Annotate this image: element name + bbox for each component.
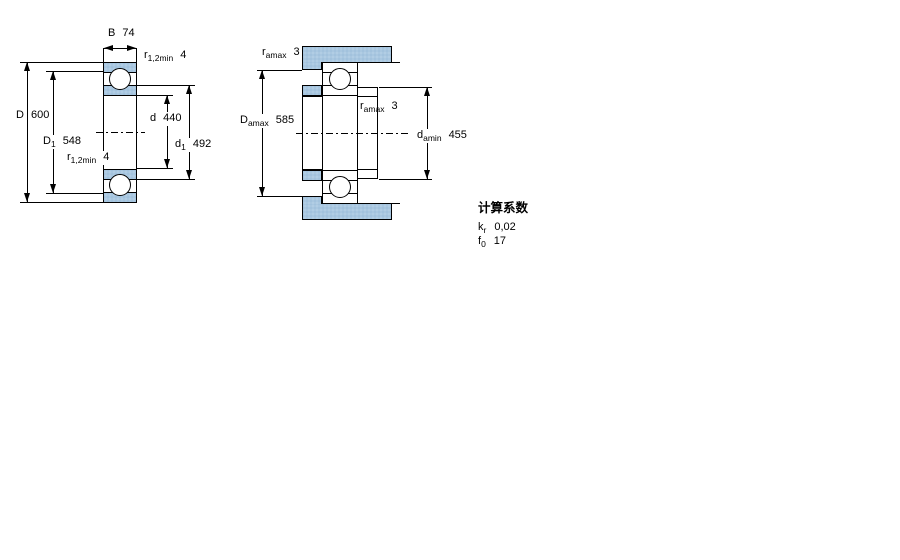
housing-top xyxy=(302,46,392,63)
dim-label-ramax-mid: ramax3 xyxy=(360,100,398,114)
dimension-line-d1 xyxy=(189,86,190,179)
ball-top xyxy=(329,68,351,90)
housing-shoulder-bottom xyxy=(302,196,322,204)
ball-top xyxy=(109,68,131,90)
dim-label-B: B74 xyxy=(108,27,135,41)
arrowhead xyxy=(424,170,430,179)
arrowhead xyxy=(164,95,170,104)
factor-f0: f017 xyxy=(478,235,506,251)
calculation-factors-heading: 计算系数 xyxy=(478,197,528,216)
dim-label-d: d440 xyxy=(148,112,183,126)
housing-bottom xyxy=(302,203,392,220)
extension-line xyxy=(20,202,103,203)
dim-label-r12min-top: r1,2min4 xyxy=(144,49,186,63)
centerline xyxy=(296,133,410,134)
arrowhead xyxy=(104,45,113,51)
dimension-line-D xyxy=(27,63,28,202)
dim-label-D1: D1548 xyxy=(41,135,83,149)
dim-label-d1: d1492 xyxy=(173,138,213,152)
arrowhead xyxy=(50,71,56,80)
dim-label-r12min-bottom: r1,2min4 xyxy=(65,151,111,165)
housing-shoulder-top xyxy=(302,62,322,70)
arrowhead xyxy=(50,184,56,193)
shaft-shoulder-bottom xyxy=(357,169,378,179)
dimension-line-d xyxy=(167,96,168,168)
ball-bottom xyxy=(329,176,351,198)
centerline xyxy=(96,132,145,133)
arrowhead xyxy=(24,62,30,71)
extension-line xyxy=(20,62,103,63)
abutment-collar-bottom xyxy=(302,170,322,181)
extension-line xyxy=(379,179,432,180)
arrowhead xyxy=(259,187,265,196)
shaft-shoulder-top xyxy=(357,87,378,97)
dimension-line-Damax xyxy=(262,71,263,196)
arrowhead xyxy=(424,87,430,96)
dim-label-ramax-top: ramax3 xyxy=(262,46,300,60)
abutment-collar-top xyxy=(302,85,322,96)
arrowhead xyxy=(164,159,170,168)
extension-line xyxy=(137,179,195,180)
dim-label-damin: damin455 xyxy=(415,129,469,143)
ball-bottom xyxy=(109,174,131,196)
extension-line xyxy=(137,168,173,169)
housing-bore-line xyxy=(392,203,400,204)
arrowhead xyxy=(186,170,192,179)
dim-label-Damax: Damax585 xyxy=(238,114,296,128)
extension-line xyxy=(46,193,103,194)
arrowhead xyxy=(24,193,30,202)
dim-label-D: D600 xyxy=(16,109,49,123)
extension-line xyxy=(257,196,302,197)
dimension-line-D1 xyxy=(53,72,54,193)
arrowhead xyxy=(127,45,136,51)
bearing-drawing-canvas: B74 D600 D1548 d440 xyxy=(0,0,900,560)
arrowhead xyxy=(186,85,192,94)
arrowhead xyxy=(259,70,265,79)
housing-bore-line xyxy=(392,62,400,63)
extension-line xyxy=(136,48,137,63)
